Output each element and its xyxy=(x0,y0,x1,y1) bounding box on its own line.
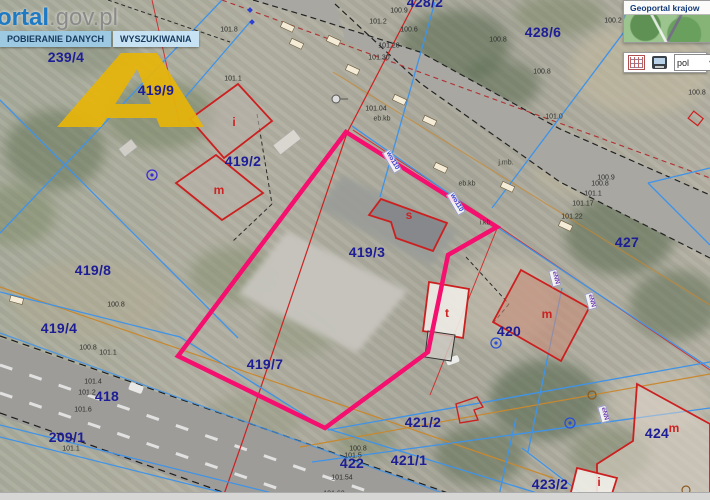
tab-wyszukiwania[interactable]: WYSZUKIWANIA xyxy=(113,31,199,47)
mini-toolbar: pol ▾ xyxy=(623,52,707,73)
attribute-grid-icon[interactable] xyxy=(628,55,645,70)
parcel-label: 423/2 xyxy=(532,477,569,491)
elevation-label: 101.54 xyxy=(331,475,352,482)
elevation-label: 101.5 xyxy=(344,453,362,460)
elevation-label: 100.8 xyxy=(107,302,125,309)
building-label: m xyxy=(542,308,553,320)
parcel-label: 420 xyxy=(497,324,521,338)
parcel-label: 421/2 xyxy=(405,415,442,429)
screen-icon[interactable] xyxy=(652,56,667,69)
building-label: t xyxy=(445,307,449,319)
geoportal-logo[interactable]: ortal.gov.pl xyxy=(0,4,118,32)
elevation-label: 101.6 xyxy=(74,407,92,414)
logo-suffix: .gov.pl xyxy=(49,4,118,31)
elevation-label: 101.2 xyxy=(78,390,96,397)
building-label: s xyxy=(406,209,413,221)
parcel-label: 428/6 xyxy=(525,25,562,39)
elevation-label: 101.17 xyxy=(572,201,593,208)
window-edge xyxy=(0,492,710,500)
parcel-label: 427 xyxy=(615,235,639,249)
parcel-label: 419/2 xyxy=(225,154,262,168)
overview-minimap[interactable] xyxy=(624,14,710,42)
overview-panel-title: Geoportal krajow xyxy=(624,1,710,14)
elevation-label: 101.2 xyxy=(369,19,387,26)
elevation-label: 101.1 xyxy=(62,446,80,453)
elevation-label: 101.28 xyxy=(378,43,399,50)
utility-label: eb.kb xyxy=(458,181,475,188)
elevation-label: 100.2 xyxy=(604,18,622,25)
elevation-label: 101.4 xyxy=(84,379,102,386)
elevation-label: 101.04 xyxy=(365,106,386,113)
elevation-label: 100.8 xyxy=(591,181,609,188)
language-value: pol xyxy=(677,58,689,68)
utility-label: i.kb xyxy=(480,220,491,227)
parcel-label: 418 xyxy=(95,389,119,403)
parcel-label: 421/1 xyxy=(391,453,428,467)
building-label: m xyxy=(669,422,680,434)
utility-label: j.mb. xyxy=(498,160,513,167)
elevation-label: 101.8 xyxy=(220,27,238,34)
parcel-label: 419/9 xyxy=(138,83,175,97)
elevation-label: 101.22 xyxy=(561,214,582,221)
logo-text: ortal xyxy=(0,4,49,31)
parcel-label: 419/3 xyxy=(349,245,386,259)
elevation-label: 101.1 xyxy=(224,76,242,83)
parcel-label: 209/1 xyxy=(49,430,86,444)
elevation-label: 101.0 xyxy=(545,114,563,121)
parcel-label: 424 xyxy=(645,426,669,440)
parcel-label: 239/4 xyxy=(48,50,85,64)
elevation-label: 101.1 xyxy=(99,350,117,357)
language-select[interactable]: pol ▾ xyxy=(674,54,710,71)
map-viewport[interactable]: 239/4419/9419/2419/8419/4419/3419/741820… xyxy=(0,0,710,500)
tab-pobieranie-danych[interactable]: POBIERANIE DANYCH xyxy=(0,31,111,47)
parcel-label: 419/8 xyxy=(75,263,112,277)
overview-panel: Geoportal krajow xyxy=(623,0,710,43)
elevation-label: 100.8 xyxy=(533,69,551,76)
building-label: i xyxy=(232,116,235,128)
building-label: i xyxy=(597,476,600,488)
elevation-label: 101.30 xyxy=(368,55,389,62)
parcel-label: 419/7 xyxy=(247,357,284,371)
elevation-label: 101.1 xyxy=(584,191,602,198)
elevation-label: 100.8 xyxy=(688,90,706,97)
elevation-label: 100.8 xyxy=(79,345,97,352)
parcel-label: 428/2 xyxy=(407,0,444,9)
elevation-label: 100.8 xyxy=(489,37,507,44)
parcel-label: 419/4 xyxy=(41,321,78,335)
building-label: m xyxy=(214,184,225,196)
header-tabs: POBIERANIE DANYCH WYSZUKIWANIA xyxy=(0,31,199,47)
elevation-label: 100.8 xyxy=(349,446,367,453)
elevation-label: 100.6 xyxy=(400,27,418,34)
utility-label: eb.kb xyxy=(373,116,390,123)
elevation-label: 100.9 xyxy=(390,8,408,15)
